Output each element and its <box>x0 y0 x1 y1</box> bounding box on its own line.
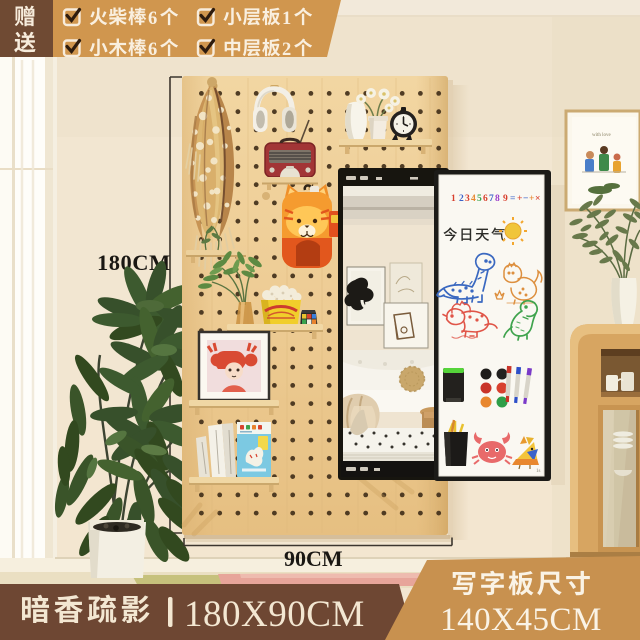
svg-text:1: 1 <box>451 194 456 204</box>
svg-text:3: 3 <box>465 194 470 204</box>
svg-text:90CM: 90CM <box>284 546 343 571</box>
svg-text:+: + <box>529 194 534 204</box>
svg-text:2: 2 <box>459 194 464 204</box>
svg-text:7: 7 <box>489 194 494 204</box>
svg-text:8: 8 <box>495 194 500 204</box>
svg-text:1s: 1s <box>536 469 541 474</box>
svg-text:−: − <box>523 194 528 204</box>
svg-text:6: 6 <box>148 9 157 29</box>
svg-text:2: 2 <box>282 40 291 60</box>
svg-text:+: + <box>517 194 522 204</box>
svg-text:6: 6 <box>483 194 488 204</box>
svg-text:×: × <box>535 194 540 204</box>
svg-text:9: 9 <box>503 194 508 204</box>
svg-text:140X45CM: 140X45CM <box>440 602 602 638</box>
svg-text:180X90CM: 180X90CM <box>184 594 365 635</box>
svg-text:=: = <box>510 194 515 204</box>
svg-text:with love: with love <box>592 133 612 138</box>
svg-text:6: 6 <box>148 40 157 60</box>
svg-text:1: 1 <box>282 9 291 29</box>
svg-text:5: 5 <box>477 194 482 204</box>
svg-text:4: 4 <box>471 194 476 204</box>
